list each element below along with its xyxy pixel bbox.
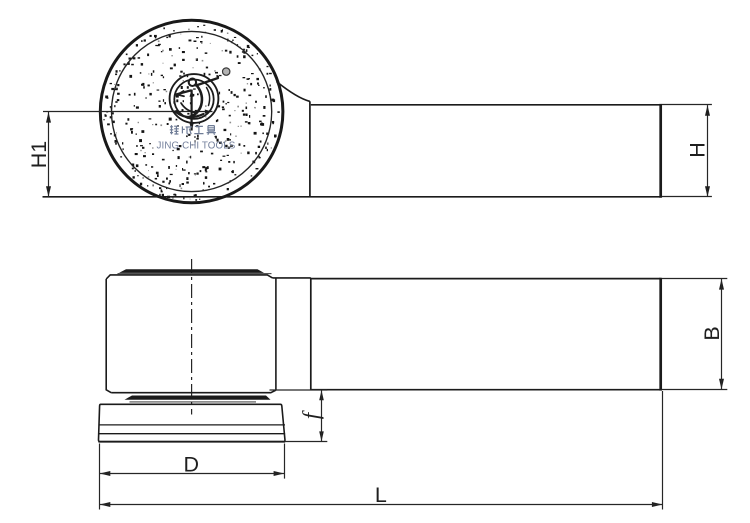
svg-text:H1: H1 [27,141,51,168]
svg-text:B: B [700,326,724,340]
svg-text:L: L [375,483,387,507]
svg-text:D: D [184,453,200,477]
svg-text:JING CHI TOOLS: JING CHI TOOLS [157,141,236,152]
svg-text:H: H [686,142,710,158]
